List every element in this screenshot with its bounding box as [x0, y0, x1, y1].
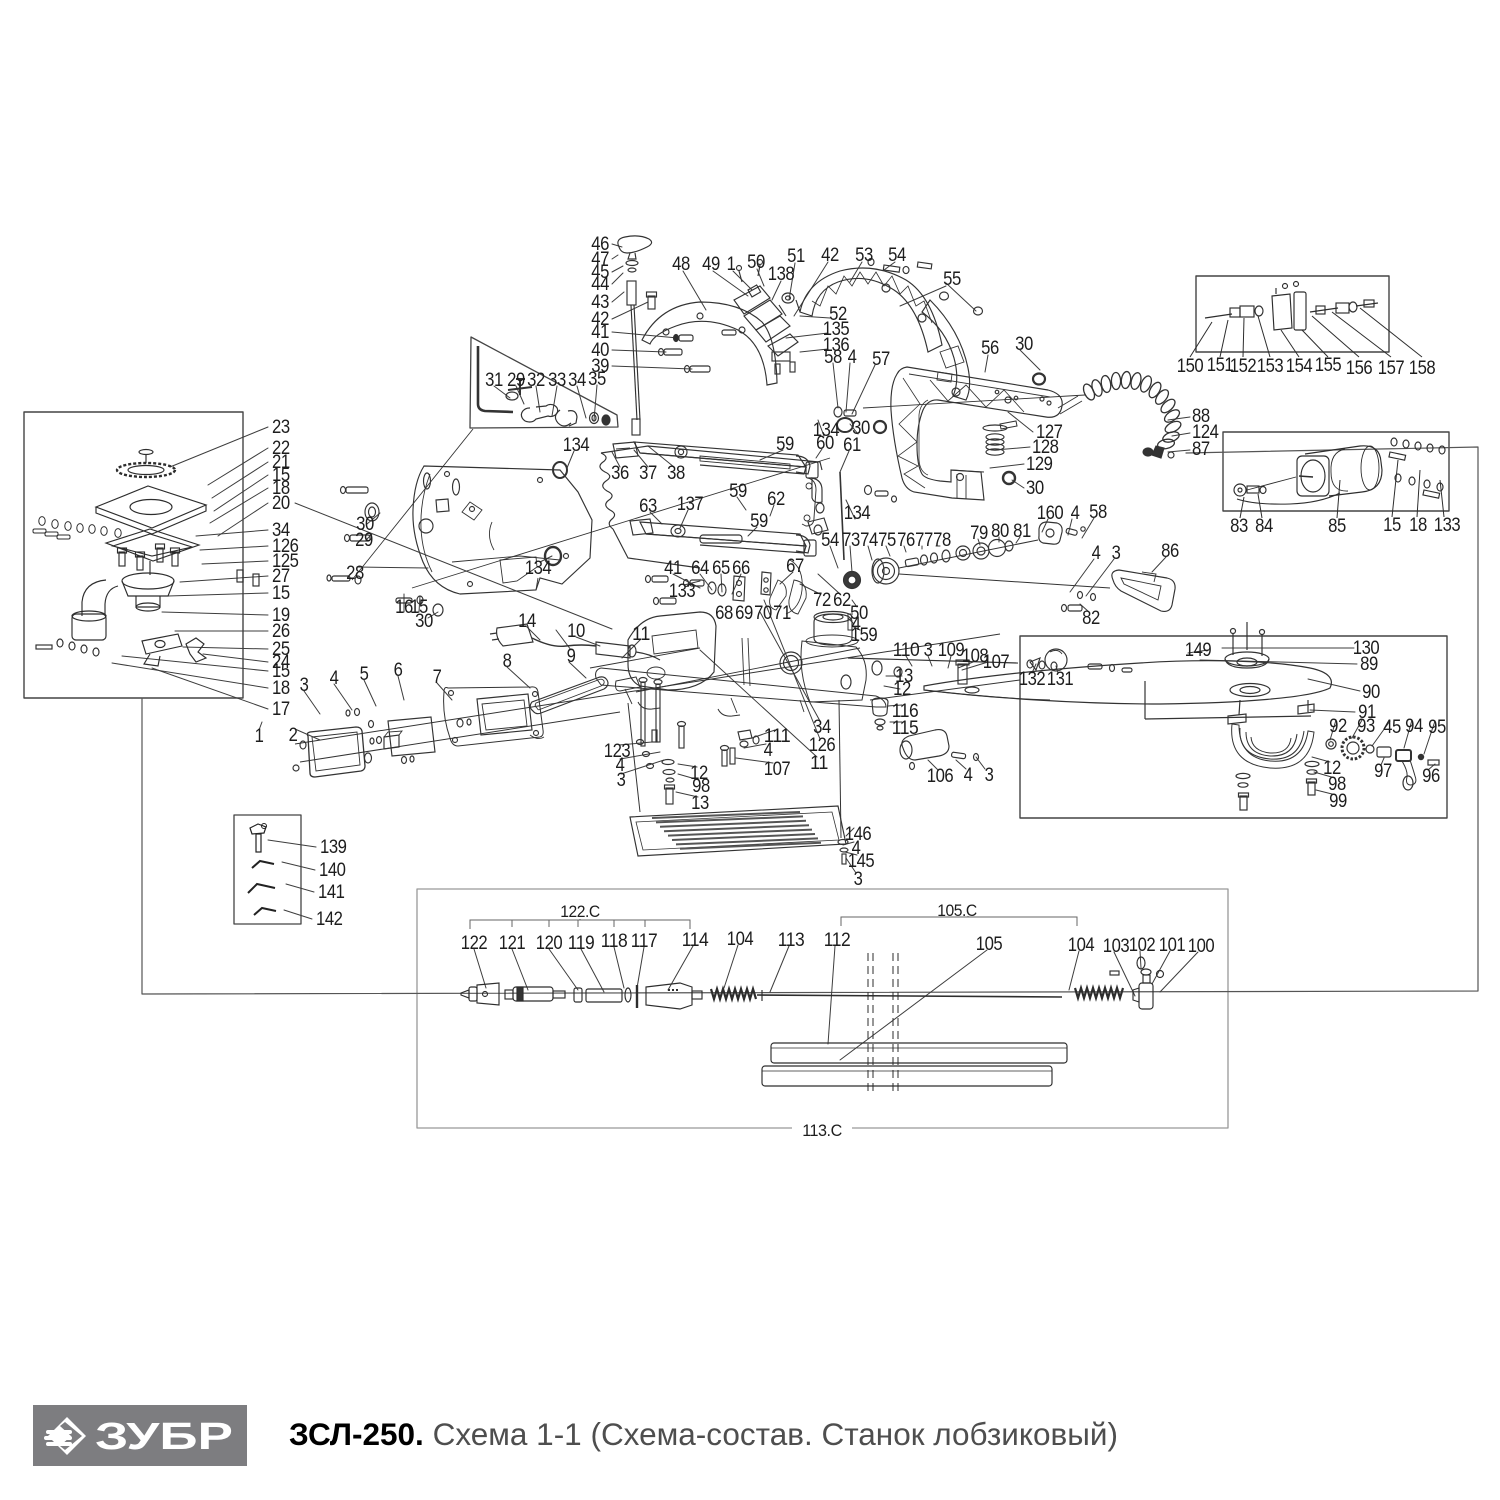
svg-text:3: 3 [300, 675, 309, 696]
svg-text:89: 89 [1360, 654, 1378, 675]
svg-text:55: 55 [943, 269, 961, 290]
svg-text:139: 139 [320, 837, 347, 858]
svg-text:29: 29 [507, 370, 525, 391]
svg-text:3: 3 [1112, 543, 1121, 564]
svg-text:31: 31 [485, 370, 503, 391]
svg-text:92: 92 [1329, 716, 1347, 737]
svg-text:140: 140 [319, 860, 346, 881]
svg-text:15: 15 [1383, 515, 1401, 536]
svg-text:129: 129 [1026, 454, 1053, 475]
svg-text:72: 72 [813, 590, 831, 611]
svg-text:7: 7 [433, 667, 442, 688]
svg-text:4: 4 [764, 740, 774, 761]
svg-text:82: 82 [1082, 608, 1100, 629]
svg-text:5: 5 [360, 664, 369, 685]
svg-text:54: 54 [821, 530, 840, 551]
svg-text:110: 110 [893, 640, 920, 661]
svg-text:101: 101 [1159, 935, 1186, 956]
svg-text:50: 50 [747, 252, 765, 273]
svg-text:96: 96 [1422, 766, 1440, 787]
svg-text:112: 112 [824, 930, 851, 951]
svg-text:133: 133 [1434, 515, 1461, 536]
svg-text:53: 53 [855, 245, 873, 266]
svg-text:121: 121 [499, 933, 526, 954]
svg-text:86: 86 [1161, 541, 1179, 562]
svg-text:137: 137 [677, 494, 704, 515]
svg-text:119: 119 [568, 933, 595, 954]
svg-text:99: 99 [1329, 791, 1347, 812]
svg-text:35: 35 [588, 369, 606, 390]
svg-text:149: 149 [1185, 640, 1212, 661]
svg-text:59: 59 [750, 511, 768, 532]
svg-text:74: 74 [860, 530, 879, 551]
svg-text:134: 134 [813, 420, 840, 441]
svg-text:18: 18 [1409, 515, 1427, 536]
svg-text:76: 76 [897, 530, 915, 551]
svg-text:18: 18 [272, 678, 290, 699]
svg-text:28: 28 [346, 563, 364, 584]
svg-text:118: 118 [601, 931, 628, 952]
svg-text:1: 1 [727, 254, 736, 275]
svg-text:159: 159 [851, 625, 878, 646]
svg-text:133: 133 [669, 581, 696, 602]
svg-text:132: 132 [1019, 669, 1046, 690]
svg-text:107: 107 [983, 652, 1010, 673]
svg-text:3: 3 [854, 869, 863, 890]
svg-text:100: 100 [1188, 936, 1215, 957]
svg-text:102: 102 [1129, 935, 1156, 956]
svg-text:14: 14 [518, 611, 537, 632]
svg-text:84: 84 [1255, 516, 1274, 537]
svg-text:156: 156 [1346, 358, 1373, 379]
svg-text:155: 155 [1315, 355, 1342, 376]
svg-text:29: 29 [355, 530, 373, 551]
svg-text:131: 131 [1047, 669, 1074, 690]
svg-text:4: 4 [1092, 543, 1102, 564]
svg-text:48: 48 [672, 254, 690, 275]
svg-text:141: 141 [318, 882, 345, 903]
svg-text:4: 4 [330, 668, 340, 689]
svg-text:4: 4 [848, 347, 858, 368]
svg-text:41: 41 [664, 558, 682, 579]
svg-text:62: 62 [767, 489, 785, 510]
svg-text:80: 80 [991, 521, 1009, 542]
svg-text:81: 81 [1013, 521, 1031, 542]
svg-text:58: 58 [1089, 502, 1107, 523]
svg-text:63: 63 [639, 496, 657, 517]
svg-text:75: 75 [878, 530, 896, 551]
svg-text:114: 114 [682, 930, 709, 951]
svg-text:154: 154 [1286, 356, 1313, 377]
svg-text:59: 59 [729, 481, 747, 502]
svg-text:87: 87 [1192, 439, 1210, 460]
svg-text:30: 30 [1026, 478, 1044, 499]
svg-text:134: 134 [844, 503, 871, 524]
svg-text:9: 9 [567, 646, 576, 667]
svg-text:15: 15 [272, 583, 290, 604]
svg-text:138: 138 [768, 264, 795, 285]
svg-text:117: 117 [631, 931, 658, 952]
svg-text:104: 104 [727, 929, 754, 950]
svg-text:3: 3 [924, 640, 933, 661]
svg-text:78: 78 [933, 530, 951, 551]
svg-text:30: 30 [1015, 334, 1033, 355]
svg-text:17: 17 [272, 699, 290, 720]
svg-text:113: 113 [778, 930, 805, 951]
svg-text:67: 67 [786, 556, 804, 577]
svg-text:70: 70 [754, 603, 772, 624]
svg-text:20: 20 [272, 493, 290, 514]
svg-text:37: 37 [639, 463, 657, 484]
svg-text:115: 115 [892, 718, 919, 739]
svg-text:90: 90 [1362, 682, 1380, 703]
svg-text:142: 142 [316, 909, 343, 930]
svg-text:2: 2 [289, 725, 298, 746]
svg-text:64: 64 [691, 558, 710, 579]
svg-text:6: 6 [394, 660, 403, 681]
svg-text:36: 36 [611, 463, 629, 484]
svg-text:34: 34 [568, 370, 587, 391]
svg-text:79: 79 [970, 523, 988, 544]
svg-text:1: 1 [255, 726, 264, 747]
svg-text:93: 93 [1357, 716, 1375, 737]
svg-text:23: 23 [272, 417, 290, 438]
svg-text:59: 59 [776, 434, 794, 455]
svg-text:51: 51 [787, 246, 805, 267]
svg-text:8: 8 [503, 651, 512, 672]
svg-text:103: 103 [1103, 936, 1130, 957]
svg-text:33: 33 [548, 370, 566, 391]
svg-text:157: 157 [1378, 358, 1405, 379]
svg-text:106: 106 [927, 766, 954, 787]
svg-text:58: 58 [824, 347, 842, 368]
svg-text:105.C: 105.C [937, 901, 977, 920]
svg-text:153: 153 [1257, 356, 1284, 377]
svg-text:69: 69 [735, 603, 753, 624]
svg-text:57: 57 [872, 349, 890, 370]
svg-text:ЗУБР: ЗУБР [95, 1416, 233, 1458]
svg-text:45: 45 [1383, 717, 1401, 738]
svg-text:109: 109 [938, 640, 965, 661]
svg-text:65: 65 [712, 558, 730, 579]
svg-text:3: 3 [985, 765, 994, 786]
svg-text:152: 152 [1230, 356, 1257, 377]
svg-text:95: 95 [1428, 717, 1446, 738]
svg-text:105: 105 [976, 934, 1003, 955]
svg-text:30: 30 [852, 418, 870, 439]
svg-text:4: 4 [1071, 503, 1081, 524]
svg-text:68: 68 [715, 603, 733, 624]
svg-text:107: 107 [764, 759, 791, 780]
svg-text:66: 66 [732, 558, 750, 579]
svg-text:38: 38 [667, 463, 685, 484]
svg-text:3: 3 [617, 770, 626, 791]
svg-text:62: 62 [833, 590, 851, 611]
svg-text:120: 120 [536, 933, 563, 954]
svg-text:32: 32 [527, 370, 545, 391]
svg-text:4: 4 [964, 765, 974, 786]
svg-text:77: 77 [915, 530, 933, 551]
svg-text:134: 134 [563, 435, 590, 456]
svg-text:54: 54 [888, 245, 907, 266]
svg-text:94: 94 [1405, 716, 1424, 737]
svg-text:42: 42 [821, 245, 839, 266]
svg-text:73: 73 [842, 530, 860, 551]
svg-text:97: 97 [1374, 761, 1392, 782]
svg-text:30: 30 [415, 611, 433, 632]
svg-text:113.C: 113.C [802, 1121, 842, 1140]
svg-text:11: 11 [632, 624, 650, 645]
svg-text:11: 11 [810, 753, 828, 774]
svg-text:134: 134 [525, 558, 552, 579]
svg-text:158: 158 [1409, 358, 1436, 379]
svg-text:85: 85 [1328, 516, 1346, 537]
svg-text:71: 71 [773, 603, 791, 624]
svg-text:10: 10 [567, 621, 585, 642]
svg-text:122: 122 [461, 933, 488, 954]
svg-text:160: 160 [1037, 503, 1064, 524]
svg-text:49: 49 [702, 254, 720, 275]
svg-text:150: 150 [1177, 356, 1204, 377]
svg-text:56: 56 [981, 338, 999, 359]
svg-text:83: 83 [1230, 516, 1248, 537]
svg-text:104: 104 [1068, 935, 1095, 956]
svg-text:12: 12 [893, 679, 911, 700]
svg-text:122.C: 122.C [560, 902, 600, 921]
svg-text:13: 13 [691, 793, 709, 814]
